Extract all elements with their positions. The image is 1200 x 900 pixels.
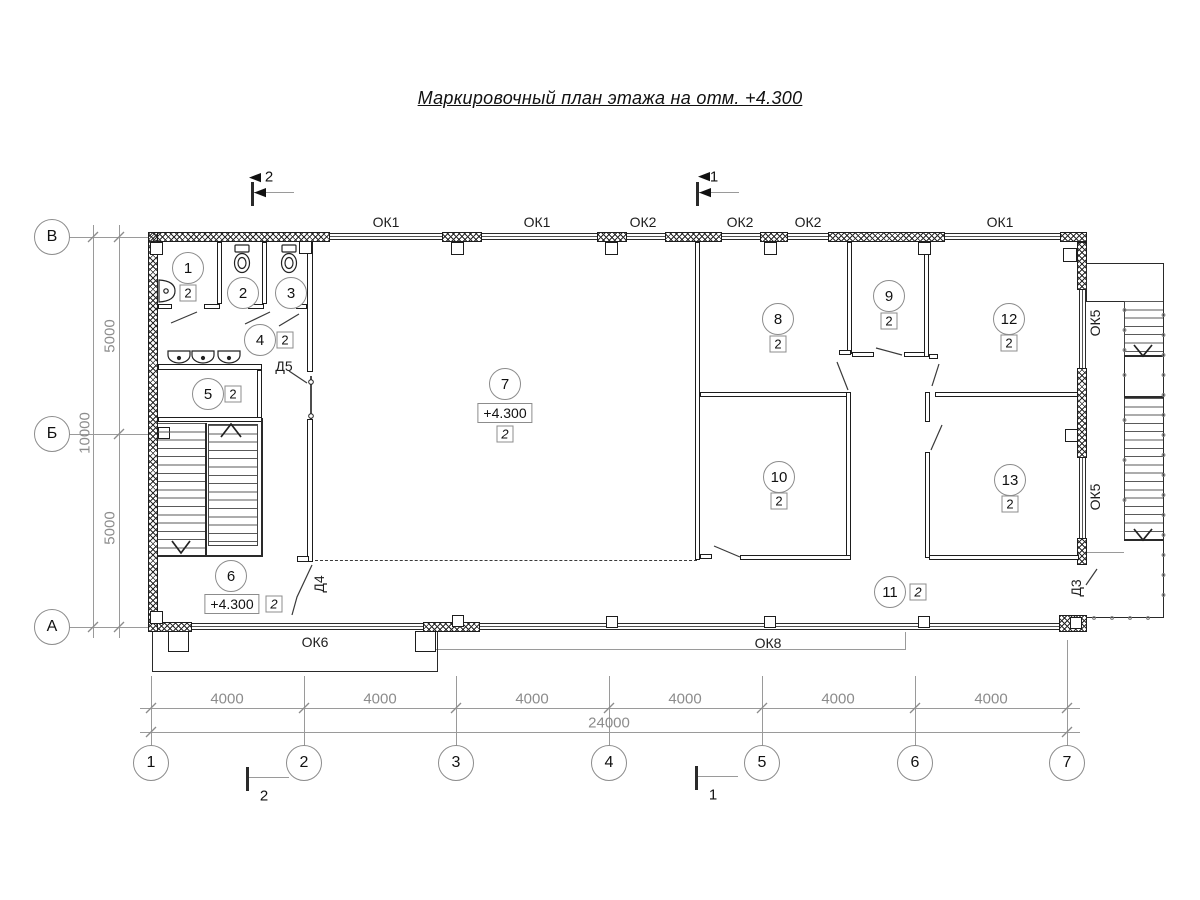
- section-mark-bar: [246, 767, 249, 791]
- room-circle-13: 13: [994, 464, 1026, 496]
- section-mark-bar: [251, 182, 254, 206]
- section-mark-line: [254, 192, 294, 193]
- wall-segment: [1077, 368, 1087, 458]
- stair-divider: [205, 423, 207, 556]
- axis-line: [609, 676, 610, 746]
- wall-segment: [665, 232, 722, 242]
- exterior-stair-flight: [1124, 301, 1163, 356]
- wall-partition: [695, 242, 700, 560]
- window-label: ОК8: [755, 635, 782, 651]
- porch-column: [415, 631, 436, 652]
- axis-circle-v: В: [34, 219, 70, 255]
- room-mark-10: 2: [771, 493, 788, 510]
- landing-line: [1087, 552, 1124, 553]
- wall-partition: [158, 364, 262, 370]
- window-ok2: [722, 233, 760, 240]
- elevation-badge-7: +4.300: [477, 403, 532, 423]
- wall-partition: [204, 304, 220, 309]
- wall-segment-left: [148, 232, 158, 632]
- dim-line: [119, 225, 120, 638]
- section-mark-bar: [696, 182, 699, 206]
- column-marker: [764, 242, 777, 255]
- wall-partition: [839, 350, 851, 355]
- door-label: Д5: [275, 358, 292, 374]
- wall-partition: [847, 242, 852, 354]
- section-label: 1: [710, 169, 718, 186]
- wall-partition: [262, 242, 267, 304]
- drawing-title: Маркировочный план этажа на отм. +4.300: [300, 88, 920, 109]
- window-label: ОК5: [1087, 310, 1103, 337]
- wall-partition: [307, 242, 313, 372]
- door-label: Д4: [311, 575, 327, 592]
- dim-label: 4000: [821, 691, 854, 708]
- axis-circle-b: Б: [34, 416, 70, 452]
- urinal-icon: [159, 280, 175, 302]
- room-mark-11: 2: [910, 584, 927, 601]
- exterior-landing-top: [1086, 263, 1164, 302]
- window-label: ОК2: [630, 214, 657, 230]
- landing-rail: [1163, 301, 1164, 618]
- dim-label: 4000: [363, 691, 396, 708]
- wall-segment: [1060, 232, 1087, 242]
- wall-segment: [1077, 538, 1087, 565]
- axis-line: [304, 676, 305, 746]
- stair-edge: [158, 555, 262, 557]
- dim-label: 4000: [974, 691, 1007, 708]
- wall-segment: [597, 232, 627, 242]
- exterior-stair-flight: [1124, 398, 1163, 540]
- window-ok1: [945, 233, 1060, 240]
- sink-icon: [168, 351, 240, 363]
- axis-circle-2: 2: [286, 745, 322, 781]
- window-ok2: [627, 233, 665, 240]
- room-circle-4: 4: [244, 324, 276, 356]
- wall-partition: [700, 554, 712, 559]
- dim-label-total: 24000: [588, 715, 630, 732]
- room-circle-3: 3: [275, 277, 307, 309]
- porch-edge: [152, 671, 438, 672]
- wall-partition: [217, 242, 222, 304]
- axis-circle-4: 4: [591, 745, 627, 781]
- section-mark-line: [698, 776, 738, 777]
- column-marker: [605, 242, 618, 255]
- room-circle-12: 12: [993, 303, 1025, 335]
- dim-line: [140, 732, 1080, 733]
- stair-arrow-icon: [172, 345, 1152, 553]
- stair-enclosure: [261, 418, 263, 557]
- axis-circle-1: 1: [133, 745, 169, 781]
- wall-partition: [257, 370, 262, 419]
- section-arrow-icon: [249, 172, 711, 197]
- room-mark-6: 2: [266, 596, 283, 613]
- wall-partition: [925, 452, 930, 558]
- stair-landing-edge: [1124, 396, 1163, 398]
- dim-label: 4000: [515, 691, 548, 708]
- column-marker: [1070, 617, 1082, 629]
- column-marker: [764, 616, 776, 628]
- room-circle-11: 11: [874, 576, 906, 608]
- column-marker: [1065, 429, 1078, 442]
- stair-flight-up: [208, 424, 258, 546]
- axis-circle-a: А: [34, 609, 70, 645]
- room-circle-9: 9: [873, 280, 905, 312]
- wall-partition: [925, 392, 930, 422]
- floor-plan-canvas: Маркировочный план этажа на отм. +4.300 …: [0, 0, 1200, 900]
- section-label: 2: [265, 169, 273, 186]
- dim-label: 4000: [210, 691, 243, 708]
- wall-partition: [297, 556, 309, 562]
- window-ok6: [192, 623, 423, 630]
- room-circle-6: 6: [215, 560, 247, 592]
- room-mark-4: 2: [277, 332, 294, 349]
- wall-partition: [852, 352, 874, 357]
- wall-partition: [846, 392, 851, 560]
- window-extent-line: [428, 649, 906, 650]
- wall-partition: [740, 555, 851, 560]
- window-label: ОК5: [1087, 484, 1103, 511]
- dim-label: 5000: [102, 319, 119, 352]
- axis-circle-7: 7: [1049, 745, 1085, 781]
- axis-line: [69, 237, 148, 238]
- room-mark-9: 2: [881, 313, 898, 330]
- axis-line: [915, 676, 916, 746]
- wall-partition: [700, 392, 850, 397]
- room-mark-8: 2: [770, 336, 787, 353]
- landing-rail: [1086, 617, 1164, 618]
- window-label: ОК1: [524, 214, 551, 230]
- wall-partition: [935, 392, 1078, 397]
- window-ok1: [330, 233, 442, 240]
- wall-segment: [760, 232, 788, 242]
- column-marker: [150, 242, 163, 255]
- window-label: ОК2: [795, 214, 822, 230]
- room-circle-8: 8: [762, 303, 794, 335]
- wall-partition: [158, 304, 172, 309]
- axis-circle-5: 5: [744, 745, 780, 781]
- stair-landing-edge: [1124, 539, 1163, 541]
- elevation-badge-6: +4.300: [204, 594, 259, 614]
- wall-partition: [158, 417, 262, 422]
- window-ok2: [788, 233, 828, 240]
- dim-label: 5000: [102, 511, 119, 544]
- column-marker: [918, 242, 931, 255]
- porch-edge: [152, 632, 153, 672]
- axis-line: [762, 676, 763, 746]
- axis-line: [151, 676, 152, 746]
- column-marker: [299, 241, 312, 254]
- window-ok5: [1079, 458, 1086, 538]
- room-circle-5: 5: [192, 378, 224, 410]
- stair-stringer: [1124, 356, 1125, 398]
- room-circle-1: 1: [172, 252, 204, 284]
- axis-line: [69, 627, 148, 628]
- stair-flight-down: [158, 423, 205, 555]
- section-label: 1: [709, 787, 717, 804]
- column-marker: [1063, 248, 1077, 262]
- window-label: ОК1: [987, 214, 1014, 230]
- section-mark-bar: [695, 766, 698, 790]
- window-label: ОК1: [373, 214, 400, 230]
- window-ok5: [1079, 290, 1086, 368]
- dim-label: 4000: [668, 691, 701, 708]
- porch-edge: [437, 632, 438, 672]
- wall-segment: [828, 232, 945, 242]
- dim-label-total: 10000: [77, 412, 94, 454]
- column-marker: [452, 615, 464, 627]
- column-marker: [918, 616, 930, 628]
- room-mark-5: 2: [225, 386, 242, 403]
- axis-line: [456, 676, 457, 746]
- section-mark-line: [699, 192, 739, 193]
- column-marker: [606, 616, 618, 628]
- window-ok1: [482, 233, 597, 240]
- room-mark-13: 2: [1002, 496, 1019, 513]
- window-extent-tick: [905, 632, 906, 650]
- room-mark-7: 2: [497, 426, 514, 443]
- room-circle-7: 7: [489, 368, 521, 400]
- window-label: ОК6: [302, 634, 329, 650]
- room-circle-10: 10: [763, 461, 795, 493]
- wall-partition: [924, 242, 929, 357]
- stair-landing-edge: [1124, 355, 1163, 357]
- dim-line: [140, 708, 1080, 709]
- room-mark-12: 2: [1001, 335, 1018, 352]
- wall-partition: [929, 354, 938, 359]
- column-marker: [150, 611, 163, 624]
- section-label: 2: [260, 788, 268, 805]
- door-d5-icon: [309, 376, 314, 419]
- axis-line: [1067, 640, 1068, 746]
- room-circle-2: 2: [227, 277, 259, 309]
- section-mark-line: [249, 777, 289, 778]
- window-label: ОК2: [727, 214, 754, 230]
- wall-partition: [307, 419, 313, 562]
- axis-circle-6: 6: [897, 745, 933, 781]
- door-label: Д3: [1068, 579, 1084, 596]
- porch-column: [168, 631, 189, 652]
- wall-partition: [929, 555, 1079, 560]
- room-mark-1: 2: [180, 285, 197, 302]
- dashed-boundary: [315, 560, 697, 561]
- axis-circle-3: 3: [438, 745, 474, 781]
- wall-segment: [442, 232, 482, 242]
- column-marker: [451, 242, 464, 255]
